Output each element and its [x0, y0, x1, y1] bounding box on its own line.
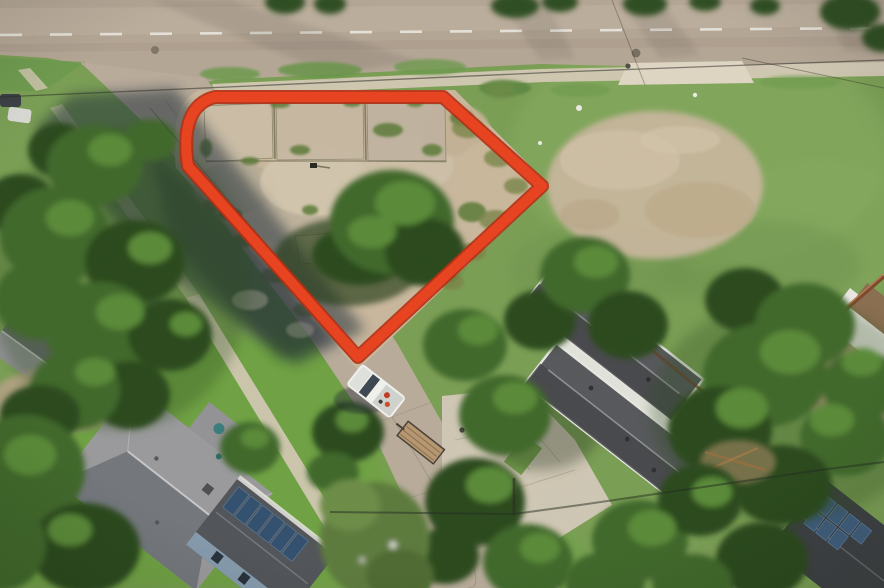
- aerial-photo-svg: [0, 0, 884, 588]
- vignette: [0, 0, 884, 588]
- aerial-photo: [0, 0, 884, 588]
